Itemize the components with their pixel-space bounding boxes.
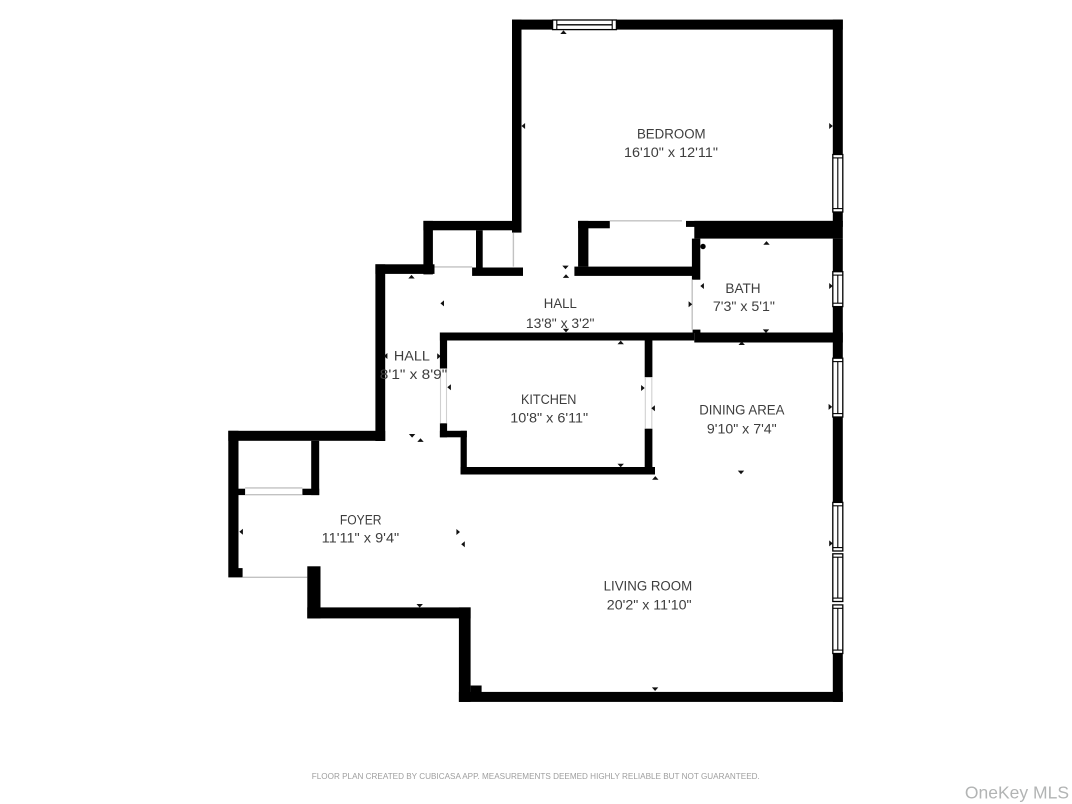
svg-text:20'2" x 11'10": 20'2" x 11'10" <box>607 597 692 613</box>
svg-text:HALL: HALL <box>394 349 430 365</box>
svg-text:9'10" x 7'4": 9'10" x 7'4" <box>707 421 777 437</box>
svg-text:OneKey MLS: OneKey MLS <box>965 783 1069 803</box>
svg-text:DINING AREA: DINING AREA <box>699 402 785 418</box>
svg-text:FOYER: FOYER <box>340 512 382 528</box>
svg-text:KITCHEN: KITCHEN <box>521 392 577 408</box>
svg-text:13'8" x 3'2": 13'8" x 3'2" <box>526 316 595 332</box>
svg-text:16'10" x 12'11": 16'10" x 12'11" <box>624 145 718 161</box>
svg-text:7'3" x 5'1": 7'3" x 5'1" <box>713 299 775 315</box>
svg-text:FLOOR PLAN CREATED BY CUBICASA: FLOOR PLAN CREATED BY CUBICASA APP. MEAS… <box>312 771 760 781</box>
svg-text:10'8" x 6'11": 10'8" x 6'11" <box>510 411 588 427</box>
svg-text:LIVING ROOM: LIVING ROOM <box>604 579 693 595</box>
svg-text:8'1" x 8'9": 8'1" x 8'9" <box>380 367 447 383</box>
svg-text:11'11" x 9'4": 11'11" x 9'4" <box>322 531 400 547</box>
svg-text:HALL: HALL <box>544 296 577 312</box>
svg-text:BEDROOM: BEDROOM <box>637 127 706 143</box>
svg-text:BATH: BATH <box>725 281 760 297</box>
